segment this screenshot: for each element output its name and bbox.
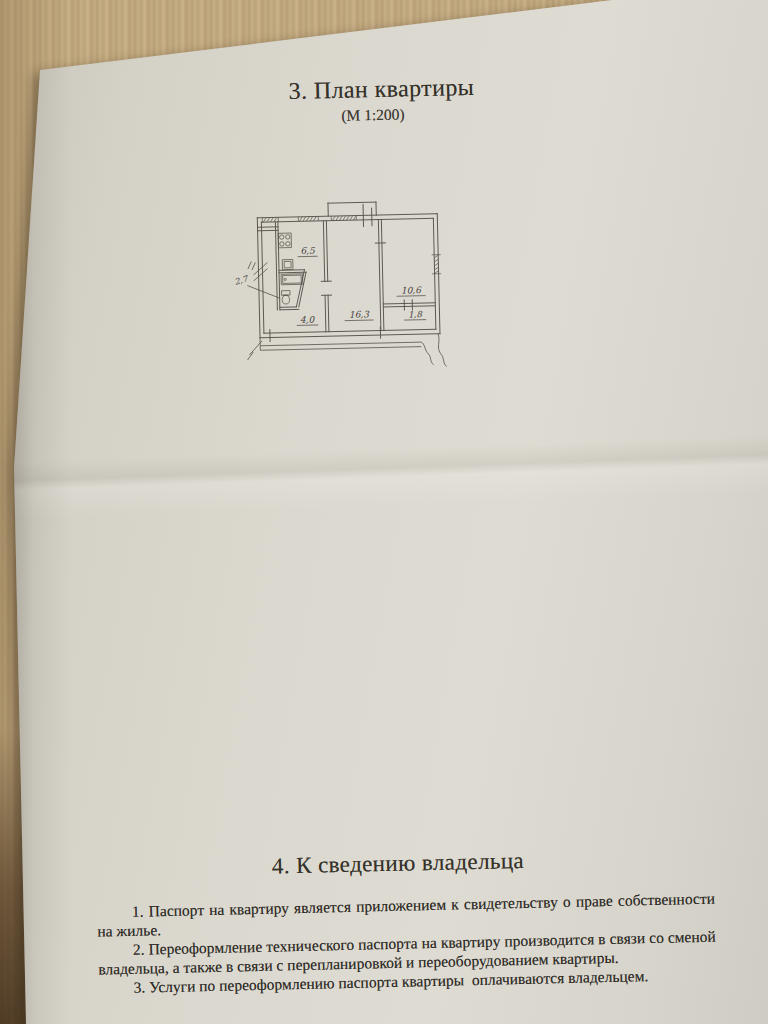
sink-symbol <box>282 260 293 270</box>
room-area-storage: 1,8 <box>408 309 422 319</box>
door-ticks <box>270 327 381 342</box>
stove-symbol <box>278 233 291 248</box>
balcony-outline <box>328 202 377 227</box>
document-content: 3. План квартиры (М 1:200) <box>0 0 768 1024</box>
owner-section-heading: 4. К сведению владельца <box>14 842 768 885</box>
owner-notes: 1. Паспорт на квартиру является приложен… <box>97 890 717 999</box>
room-area-living-room: 16,3 <box>349 309 371 319</box>
toilet-symbol <box>281 291 290 304</box>
bathtub-symbol <box>281 274 303 285</box>
room-partition <box>375 219 388 330</box>
room-area-bathroom: 2,7 <box>233 273 250 287</box>
room-area-bedroom: 10,6 <box>401 285 423 295</box>
floor-plan-drawing: 6,5 2,7 4,0 16,3 10,6 1,8 <box>232 181 468 372</box>
room-area-kitchen: 6,5 <box>300 245 316 255</box>
leader-line <box>247 285 280 299</box>
reference-mark <box>248 261 256 270</box>
photographed-document: 3. План квартиры (М 1:200) <box>0 0 768 1024</box>
room-area-hallway: 4,0 <box>300 315 316 325</box>
room-area-labels: 6,5 2,7 4,0 16,3 10,6 1,8 <box>232 243 423 326</box>
